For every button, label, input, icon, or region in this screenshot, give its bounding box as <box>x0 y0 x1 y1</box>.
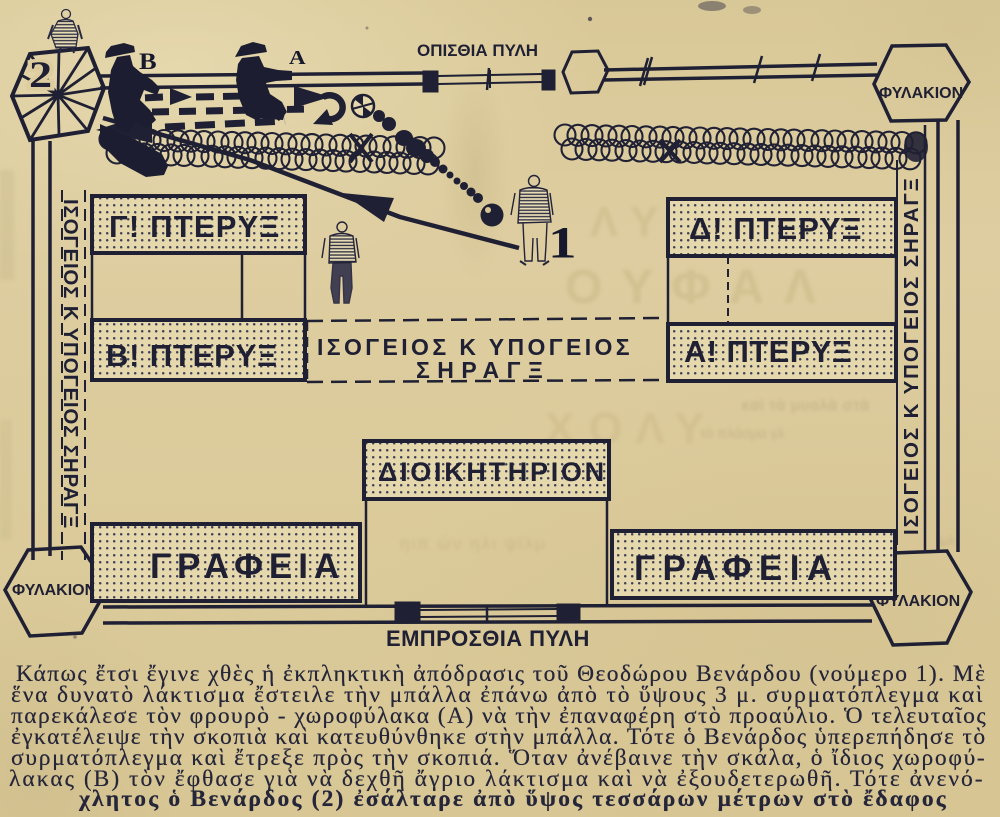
svg-text:ηιπ ών ηλι ψϊλμ: ηιπ ών ηλι ψϊλμ <box>400 534 547 553</box>
svg-text:ΙΣΟΓΕΙΟΣ Κ ΥΠΟΓΕΙΟΣ ΣΗΡΑΓΞ: ΙΣΟΓΕΙΟΣ Κ ΥΠΟΓΕΙΟΣ ΣΗΡΑΓΞ <box>59 199 82 529</box>
svg-text:ΣΗΡΑΓΞ: ΣΗΡΑΓΞ <box>416 357 550 383</box>
svg-text:1: 1 <box>548 219 577 267</box>
svg-text:ϊμλ: ϊμλ <box>937 533 955 548</box>
svg-text:ΟΠΙΣΘΙΑ ΠΥΛΗ: ΟΠΙΣΘΙΑ ΠΥΛΗ <box>417 41 538 60</box>
svg-text:Γ! ΠΤΕΡΥΞ: Γ! ΠΤΕΡΥΞ <box>109 209 281 244</box>
svg-text:ΕΜΠΡΟΣΘΙΑ ΠΥΛΗ: ΕΜΠΡΟΣΘΙΑ ΠΥΛΗ <box>386 626 590 651</box>
svg-text:2: 2 <box>29 55 52 96</box>
svg-text:τὸ πλάσμα γλ: τὸ πλάσμα γλ <box>700 425 784 441</box>
svg-text:A: A <box>289 46 306 68</box>
svg-text:ΦΥΛΑΚΙΟΝ: ΦΥΛΑΚΙΟΝ <box>12 582 96 599</box>
svg-text:ΔΙΟΙΚΗΤΗΡΙΟΝ: ΔΙΟΙΚΗΤΗΡΙΟΝ <box>378 457 607 487</box>
svg-text:ΙΣΟΓΕΙΟΣ Κ ΥΠΟΓΕΙΟΣ ΣΗΡΑΓΞ: ΙΣΟΓΕΙΟΣ Κ ΥΠΟΓΕΙΟΣ ΣΗΡΑΓΞ <box>900 176 923 535</box>
svg-text:καὶ τὰ μυαλὰ στὰ: καὶ τὰ μυαλὰ στὰ <box>742 397 870 414</box>
svg-text:Δ! ΠΤΕΡΥΞ: Δ! ΠΤΕΡΥΞ <box>689 211 863 246</box>
svg-text:Β! ΠΤΕΡΥΞ: Β! ΠΤΕΡΥΞ <box>106 338 278 373</box>
svg-text:ΦΥΛΑΚΙΟΝ: ΦΥΛΑΚΙΟΝ <box>879 85 963 102</box>
svg-text:ΓΡΑΦΕΙΑ: ΓΡΑΦΕΙΑ <box>634 549 840 588</box>
svg-text:Α! ΠΤΕΡΥΞ: Α! ΠΤΕΡΥΞ <box>684 334 852 369</box>
svg-text:B: B <box>139 50 157 75</box>
svg-text:ΓΡΑΦΕΙΑ: ΓΡΑΦΕΙΑ <box>150 547 345 586</box>
svg-text:ΟΥΦΑΛ: ΟΥΦΑΛ <box>565 261 836 314</box>
